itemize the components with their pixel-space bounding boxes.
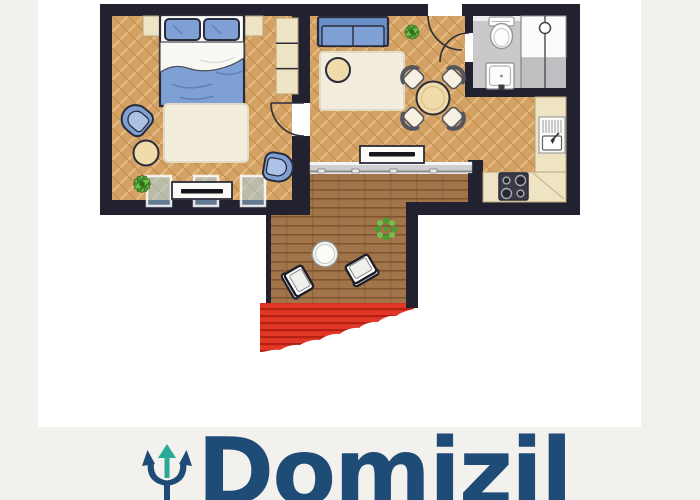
page: Domizil <box>0 0 700 500</box>
bed <box>160 15 244 106</box>
terrace-plant <box>375 218 398 241</box>
bedroom-rug <box>164 104 248 162</box>
basin-tap <box>499 85 505 90</box>
shower <box>521 16 566 88</box>
side-table <box>326 58 350 82</box>
sofa <box>318 17 388 46</box>
trident-icon <box>139 436 195 500</box>
bedroom-window <box>147 176 171 206</box>
pillow <box>204 19 239 40</box>
tv-sideboard <box>172 182 232 199</box>
wardrobe <box>276 18 298 94</box>
kitchen-sink <box>539 117 565 153</box>
side-table <box>134 141 159 166</box>
bedroom-window <box>241 176 265 206</box>
tv <box>369 152 415 157</box>
terrace-table <box>312 241 338 267</box>
terrace-edge <box>266 210 271 303</box>
floor-plan <box>0 0 700 427</box>
tv-console <box>360 146 424 163</box>
shower-drain <box>540 23 551 34</box>
toilet <box>489 17 514 49</box>
brand-name: Domizil <box>197 426 571 500</box>
pillow <box>165 19 200 40</box>
stove <box>499 173 528 200</box>
washbasin <box>486 63 514 90</box>
tv <box>181 189 223 194</box>
